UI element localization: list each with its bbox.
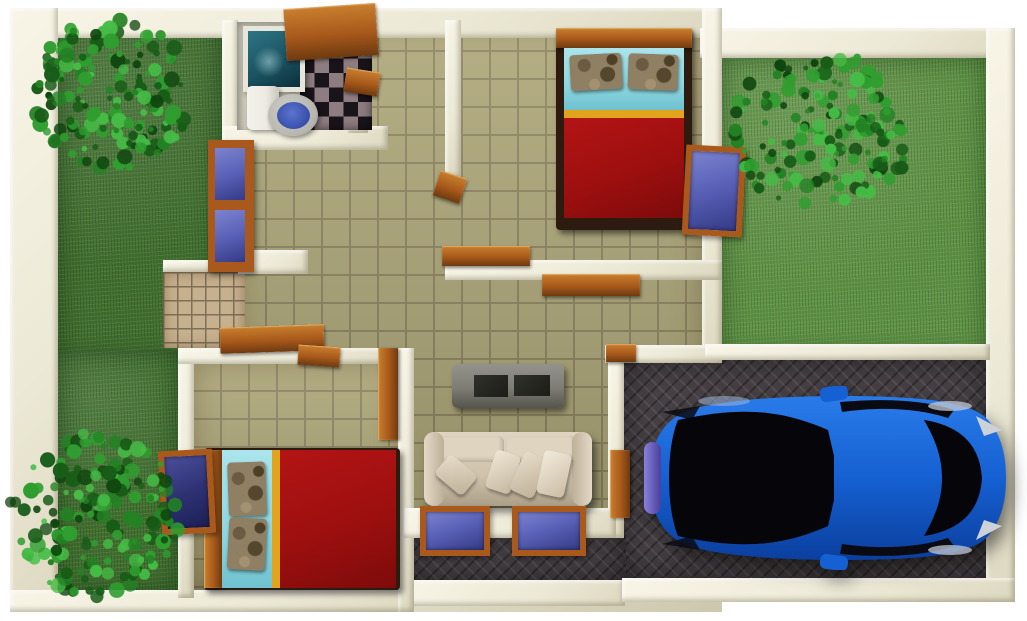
blue-car — [632, 386, 1012, 570]
car-front-grille — [644, 442, 661, 514]
hall-window-pane-bottom — [215, 210, 245, 262]
bed-top-stripe — [564, 110, 684, 118]
bed-bottom-blanket — [280, 450, 396, 588]
wall-bottom-left — [10, 590, 414, 612]
bedroom-bottom-window — [158, 449, 216, 536]
bed-bottom-pillow-bottom — [227, 517, 268, 571]
wall-top-right — [700, 28, 1015, 58]
bathroom-door — [283, 3, 378, 61]
car-windshield-hood — [669, 412, 834, 545]
carport-door-header — [606, 344, 636, 362]
wall-bottom-right — [622, 578, 1015, 602]
wall-yard-driveway — [705, 344, 990, 360]
wall-shelf-a — [442, 246, 530, 266]
living-window-right — [512, 506, 586, 556]
bed-top-pillow-left — [569, 53, 623, 92]
wall-bedroom-top-left — [445, 20, 461, 178]
bedroom-top-window — [682, 144, 747, 237]
bed-top-pillow-right — [627, 53, 678, 91]
patio-wall-shelf-small — [297, 345, 340, 368]
hall-window-frame — [208, 140, 254, 272]
blue-car-graphic — [632, 386, 1012, 570]
wall-left — [10, 8, 58, 612]
sofa — [424, 432, 592, 506]
bed-top — [556, 28, 692, 230]
car-taillight-top — [928, 401, 972, 411]
wall-living-left — [398, 348, 414, 612]
wall-shelf-b — [542, 274, 640, 296]
bed-bottom-stripe — [272, 450, 280, 588]
bed-bottom — [204, 448, 400, 590]
bed-top-blanket — [564, 118, 684, 218]
car-taillight-bottom — [928, 545, 972, 555]
tv-console — [452, 364, 564, 408]
sofa-armrest-right — [572, 432, 592, 506]
tv-console-inset-left — [474, 375, 508, 397]
hall-window-pane-top — [215, 148, 245, 200]
living-window-left — [420, 506, 490, 556]
car-highlight-front — [698, 396, 750, 406]
wall-bottom-mid — [404, 580, 625, 606]
bed-top-headboard — [556, 28, 692, 48]
right-yard-grass — [720, 56, 988, 358]
carport-door — [610, 450, 630, 518]
tv-console-inset-right — [514, 375, 550, 396]
toilet-bowl — [277, 102, 310, 129]
bedroom-bottom-door — [378, 348, 398, 440]
bed-bottom-pillow-top — [227, 461, 267, 516]
floor-plan-canvas — [0, 0, 1027, 621]
bathroom-door-edge — [343, 67, 380, 96]
